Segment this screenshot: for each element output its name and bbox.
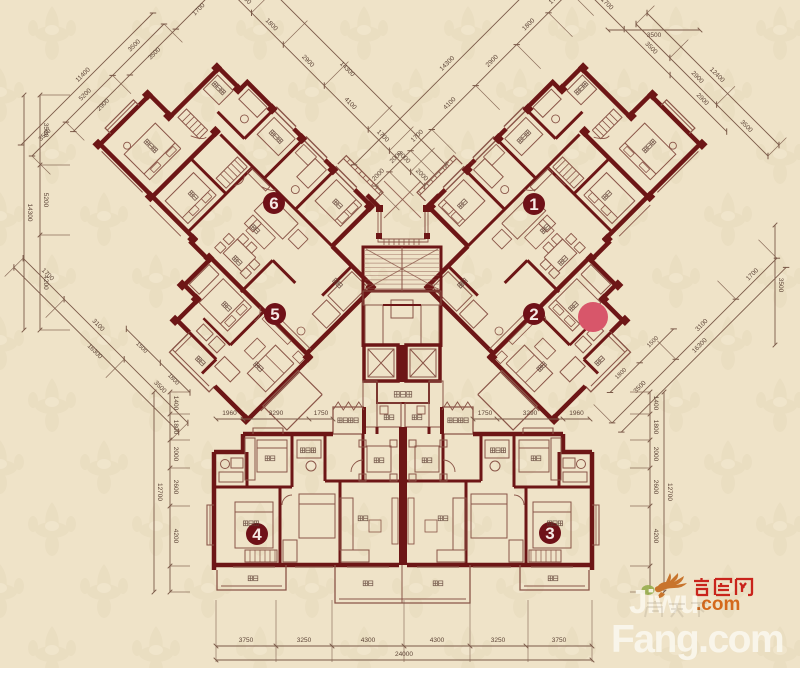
svg-text:3290: 3290 — [269, 410, 284, 417]
svg-text:1960: 1960 — [222, 410, 237, 417]
svg-text:14300: 14300 — [26, 203, 33, 221]
svg-text:1960: 1960 — [569, 410, 584, 417]
svg-text:3500: 3500 — [777, 278, 784, 293]
svg-text:4: 4 — [252, 525, 262, 544]
svg-text:1800: 1800 — [172, 420, 179, 435]
svg-text:Jiwu: Jiwu — [629, 583, 698, 620]
svg-text:4300: 4300 — [430, 637, 445, 644]
svg-text:2000: 2000 — [652, 447, 659, 462]
svg-text:3250: 3250 — [297, 637, 312, 644]
svg-text:5200: 5200 — [42, 193, 49, 208]
svg-text:1400: 1400 — [652, 396, 659, 411]
svg-text:12700: 12700 — [666, 483, 673, 501]
svg-text:3290: 3290 — [523, 410, 538, 417]
svg-text:3750: 3750 — [552, 637, 567, 644]
svg-text:4200: 4200 — [42, 275, 49, 290]
svg-text:Fang.com: Fang.com — [611, 618, 783, 661]
svg-text:1400: 1400 — [172, 396, 179, 411]
svg-text:1750: 1750 — [314, 410, 329, 417]
svg-text:1: 1 — [529, 195, 538, 214]
svg-text:1750: 1750 — [478, 410, 493, 417]
svg-text:3: 3 — [545, 524, 554, 543]
svg-text:3500: 3500 — [647, 32, 662, 39]
svg-text:2600: 2600 — [172, 480, 179, 495]
svg-text:2: 2 — [529, 305, 538, 324]
svg-text:1800: 1800 — [652, 420, 659, 435]
svg-text:4200: 4200 — [652, 529, 659, 544]
svg-text:3750: 3750 — [239, 637, 254, 644]
svg-text:12700: 12700 — [156, 483, 163, 501]
svg-text:4300: 4300 — [361, 637, 376, 644]
svg-text:3250: 3250 — [491, 637, 506, 644]
svg-text:2000: 2000 — [172, 447, 179, 462]
svg-text:2600: 2600 — [652, 480, 659, 495]
svg-text:4200: 4200 — [172, 529, 179, 544]
svg-text:5: 5 — [270, 305, 279, 324]
svg-text:3500: 3500 — [42, 123, 49, 138]
svg-text:6: 6 — [269, 194, 278, 213]
